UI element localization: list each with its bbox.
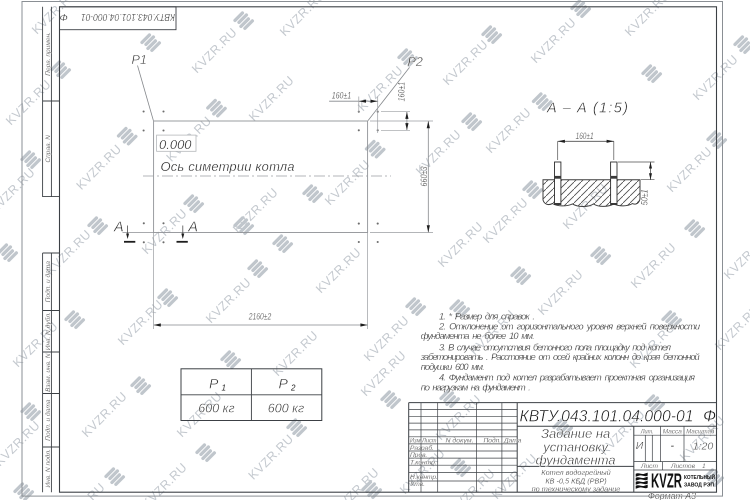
svg-text:подушки 600 мм.: подушки 600 мм.	[421, 362, 485, 372]
svg-text:P2: P2	[408, 55, 423, 69]
svg-text:по техническому задание: по техническому задание	[532, 485, 621, 494]
svg-text:И: И	[636, 440, 644, 452]
svg-text:KVZR.RU: KVZR.RU	[29, 0, 80, 37]
svg-text:Дата: Дата	[503, 438, 522, 445]
svg-text:KVZR.RU: KVZR.RU	[440, 37, 491, 88]
svg-text:KVZR.RU: KVZR.RU	[277, 0, 328, 39]
svg-text:KVZR.RU: KVZR.RU	[10, 319, 61, 370]
svg-text:ЗАВОД РЭП: ЗАВОД РЭП	[684, 482, 714, 488]
svg-text:P: P	[209, 376, 219, 392]
svg-text:1: 1	[702, 463, 706, 470]
svg-text:4. Фундамент под котел разраба: 4. Фундамент под котел разрабатывает про…	[439, 373, 695, 383]
svg-text:Подп. и дата: Подп. и дата	[44, 399, 52, 441]
svg-text:Масштаб: Масштаб	[686, 428, 714, 436]
svg-text:KVZR: KVZR	[651, 471, 682, 493]
svg-text:забетонировать . Расстояние от: забетонировать . Расстояние от осей край…	[420, 352, 700, 362]
svg-text:Пров.: Пров.	[410, 452, 428, 459]
svg-text:Утв.: Утв.	[409, 481, 425, 488]
svg-text:Разраб.: Разраб.	[410, 444, 434, 452]
svg-text:P1: P1	[132, 53, 147, 67]
svg-text:160±1: 160±1	[332, 91, 352, 101]
svg-text:Листов: Листов	[670, 463, 696, 470]
svg-text:Формат А3: Формат А3	[648, 491, 696, 500]
svg-text:KVZR.RU: KVZR.RU	[690, 52, 741, 103]
svg-text:660±3: 660±3	[419, 167, 429, 187]
svg-text:A: A	[113, 220, 124, 236]
svg-text:KVZR.RU: KVZR.RU	[189, 25, 240, 76]
svg-text:KVZR.RU: KVZR.RU	[246, 73, 297, 124]
svg-text:KVZR.RU: KVZR.RU	[270, 328, 321, 379]
svg-text:KVZR.RU: KVZR.RU	[115, 297, 166, 348]
svg-text:KVZR.RU: KVZR.RU	[447, 466, 498, 500]
svg-text:A: A	[187, 220, 198, 236]
svg-text:KVZR.RU: KVZR.RU	[712, 302, 750, 353]
svg-text:160±1: 160±1	[576, 131, 594, 141]
svg-text:Взам. инв. N: Взам. инв. N	[45, 353, 52, 392]
svg-text:фундамента не более 10 мм.: фундамента не более 10 мм.	[421, 331, 535, 341]
svg-text:2: 2	[290, 384, 296, 393]
svg-text:КВТУ.043.101.04.000-01: КВТУ.043.101.04.000-01	[81, 11, 175, 23]
svg-text:KVZR.RU: KVZR.RU	[483, 105, 534, 156]
svg-text:KVZR.RU: KVZR.RU	[528, 15, 579, 66]
svg-text:KVZR.RU: KVZR.RU	[57, 480, 108, 500]
svg-text:P: P	[279, 376, 289, 392]
svg-text:KVZR.RU: KVZR.RU	[628, 240, 679, 291]
svg-text:Ф: Ф	[703, 408, 716, 426]
svg-text:Н.контр.: Н.контр.	[410, 474, 438, 481]
svg-text:2. Отклонение от горизонтально: 2. Отклонение от горизонтального уровня …	[438, 321, 700, 331]
svg-text:фундамента: фундамента	[536, 452, 616, 467]
svg-text:KVZR.RU: KVZR.RU	[622, 0, 673, 39]
svg-text:Лист: Лист	[640, 463, 658, 470]
svg-text:KVZR.RU: KVZR.RU	[435, 219, 486, 270]
svg-text:600 кг: 600 кг	[198, 401, 234, 415]
svg-text:KVZR.RU: KVZR.RU	[664, 144, 715, 195]
svg-text:Ось симетрии котла: Ось симетрии котла	[161, 159, 295, 174]
svg-text:N докум.: N докум.	[446, 437, 474, 445]
svg-text:Справ. N: Справ. N	[45, 135, 52, 163]
svg-text:-: -	[671, 440, 675, 452]
svg-text:KVZR.RU: KVZR.RU	[139, 206, 190, 257]
svg-text:KVZR.RU: KVZR.RU	[139, 460, 190, 500]
svg-text:Инв. N подл.: Инв. N подл.	[44, 449, 52, 488]
svg-text:KVZR.RU: KVZR.RU	[3, 77, 54, 128]
svg-text:КОТЕЛЬНЫЙ: КОТЕЛЬНЫЙ	[684, 473, 715, 481]
svg-text:KVZR.RU: KVZR.RU	[79, 389, 130, 440]
svg-text:1: 1	[222, 384, 226, 393]
svg-text:по нагрузкам на фундамент .: по нагрузкам на фундамент .	[421, 382, 531, 392]
svg-text:A – A (1:5): A – A (1:5)	[546, 101, 628, 117]
svg-text:2160±2: 2160±2	[248, 311, 271, 321]
svg-text:KVZR.RU: KVZR.RU	[313, 245, 364, 296]
svg-text:1. * Размер для справок .: 1. * Размер для справок .	[439, 312, 535, 322]
svg-text:KVZR.RU: KVZR.RU	[0, 165, 38, 216]
svg-text:KVZR.RU: KVZR.RU	[203, 275, 254, 326]
svg-text:КВТУ.043.101.04.000-01: КВТУ.043.101.04.000-01	[520, 408, 694, 426]
svg-text:3. В случае отсутствия бетонно: 3. В случае отсутствия бетонного пола пл…	[439, 342, 672, 352]
svg-text:KVZR.RU: KVZR.RU	[480, 195, 531, 246]
svg-text:KVZR.RU: KVZR.RU	[0, 418, 43, 469]
svg-text:Ф: Ф	[60, 11, 68, 23]
svg-text:KVZR.RU: KVZR.RU	[246, 432, 297, 483]
svg-text:600 кг: 600 кг	[268, 401, 304, 415]
svg-text:KVZR.RU: KVZR.RU	[721, 231, 750, 282]
svg-text:Инв. N дубл.: Инв. N дубл.	[44, 312, 52, 350]
svg-text:1:20: 1:20	[693, 441, 714, 453]
svg-text:KVZR.RU: KVZR.RU	[74, 142, 125, 193]
svg-text:KVZR.RU: KVZR.RU	[322, 157, 373, 208]
svg-text:50±1: 50±1	[639, 189, 649, 205]
svg-text:Масса: Масса	[663, 429, 682, 436]
svg-text:KVZR.RU: KVZR.RU	[535, 267, 586, 318]
svg-text:Перв. примен.: Перв. примен.	[45, 32, 52, 76]
svg-text:Подп.: Подп.	[484, 437, 502, 445]
svg-text:Изм.Лист: Изм.Лист	[410, 438, 437, 445]
svg-text:Лит.: Лит.	[640, 429, 654, 436]
svg-text:160±1: 160±1	[396, 82, 406, 102]
svg-text:0.000: 0.000	[159, 137, 192, 152]
svg-text:Подп. и дата: Подп. и дата	[44, 261, 52, 303]
svg-text:Т.контр.: Т.контр.	[410, 459, 437, 466]
